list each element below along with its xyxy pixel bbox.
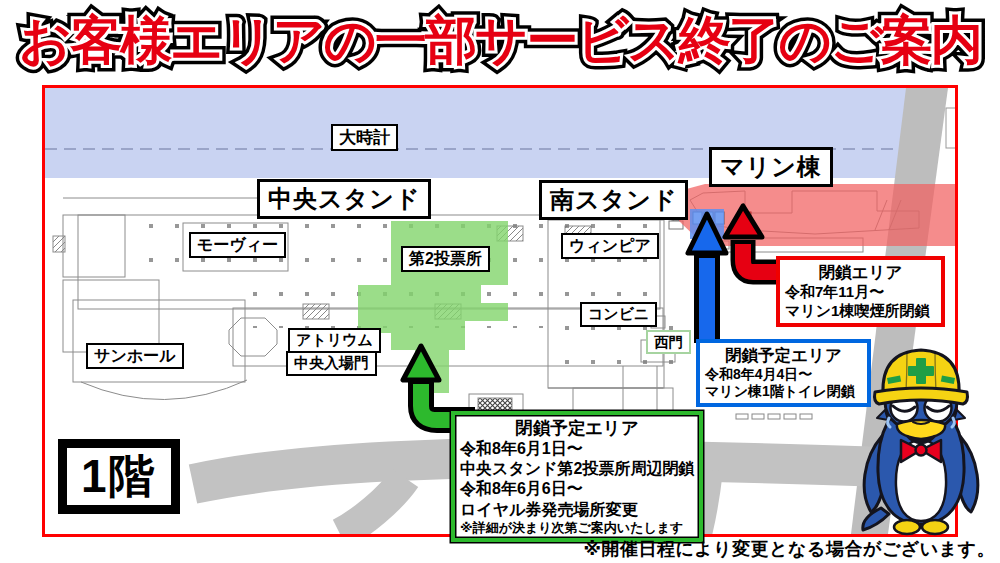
callout-line: ロイヤル券発売場所変更 (460, 500, 694, 520)
label-marine-building: マリン棟 (709, 147, 833, 187)
small-structure (946, 108, 955, 148)
label-atrium: アトリウム (288, 328, 381, 353)
label-convenience-store: コンビニ (580, 302, 657, 327)
callout-title: 閉鎖予定エリア (460, 417, 694, 439)
callout-title: 閉鎖エリア (785, 262, 936, 283)
page-title-text: お客様エリアの一部サービス終了のご案内 (0, 0, 1000, 80)
label-sun-hall: サンホール (86, 343, 184, 369)
footer-note: ※開催日程により変更となる場合がございます。 (583, 537, 995, 561)
callout-line: 中央スタンド第2投票所周辺閉鎖 (460, 459, 694, 479)
callout-line: 令和7年11月〜 (785, 283, 936, 302)
callout-title: 閉鎖予定エリア (705, 345, 862, 366)
floor-badge: 1階 (58, 439, 180, 514)
label-movie: モーヴィー (189, 232, 286, 258)
label-central-stand: 中央スタンド (257, 179, 431, 219)
page-title: お客様エリアの一部サービス終了のご案内 お客様エリアの一部サービス終了のご案内 … (0, 0, 1000, 82)
callout-planned-voting-closure: 閉鎖予定エリア 令和8年6月1日〜 中央スタンド第2投票所周辺閉鎖 令和8年6月… (451, 411, 703, 542)
callout-line: マリン1棟喫煙所閉鎖 (785, 302, 936, 321)
callout-line: 令和8年4月4日〜 (705, 366, 862, 384)
label-south-stand: 南スタンド (539, 180, 688, 220)
helmet-icon (875, 350, 968, 404)
label-big-clock: 大時計 (331, 124, 398, 151)
callout-line: マリン棟1階トイレ閉鎖 (705, 383, 862, 401)
label-voting-place-2: 第2投票所 (401, 246, 490, 272)
mascot-bird (851, 339, 991, 541)
callout-planned-toilet-closure: 閉鎖予定エリア 令和8年4月4日〜 マリン棟1階トイレ閉鎖 (696, 339, 871, 407)
label-central-entrance-gate: 中央入場門 (286, 351, 377, 376)
floor-map: 大時計 マリン棟 中央スタンド 南スタンド モーヴィー 第2投票所 ウィンピア … (42, 85, 958, 537)
callout-line: 令和8年6月1日〜 (460, 439, 694, 459)
callout-closed-area: 閉鎖エリア 令和7年11月〜 マリン1棟喫煙所閉鎖 (776, 256, 945, 327)
callout-note: ※詳細が決まり次第ご案内いたします (460, 520, 694, 536)
notice-poster: お客様エリアの一部サービス終了のご案内 お客様エリアの一部サービス終了のご案内 … (0, 0, 1000, 563)
label-west-gate: 西門 (646, 330, 691, 354)
label-winpia: ウィンピア (561, 233, 659, 259)
callout-line: 令和8年6月6日〜 (460, 479, 694, 499)
